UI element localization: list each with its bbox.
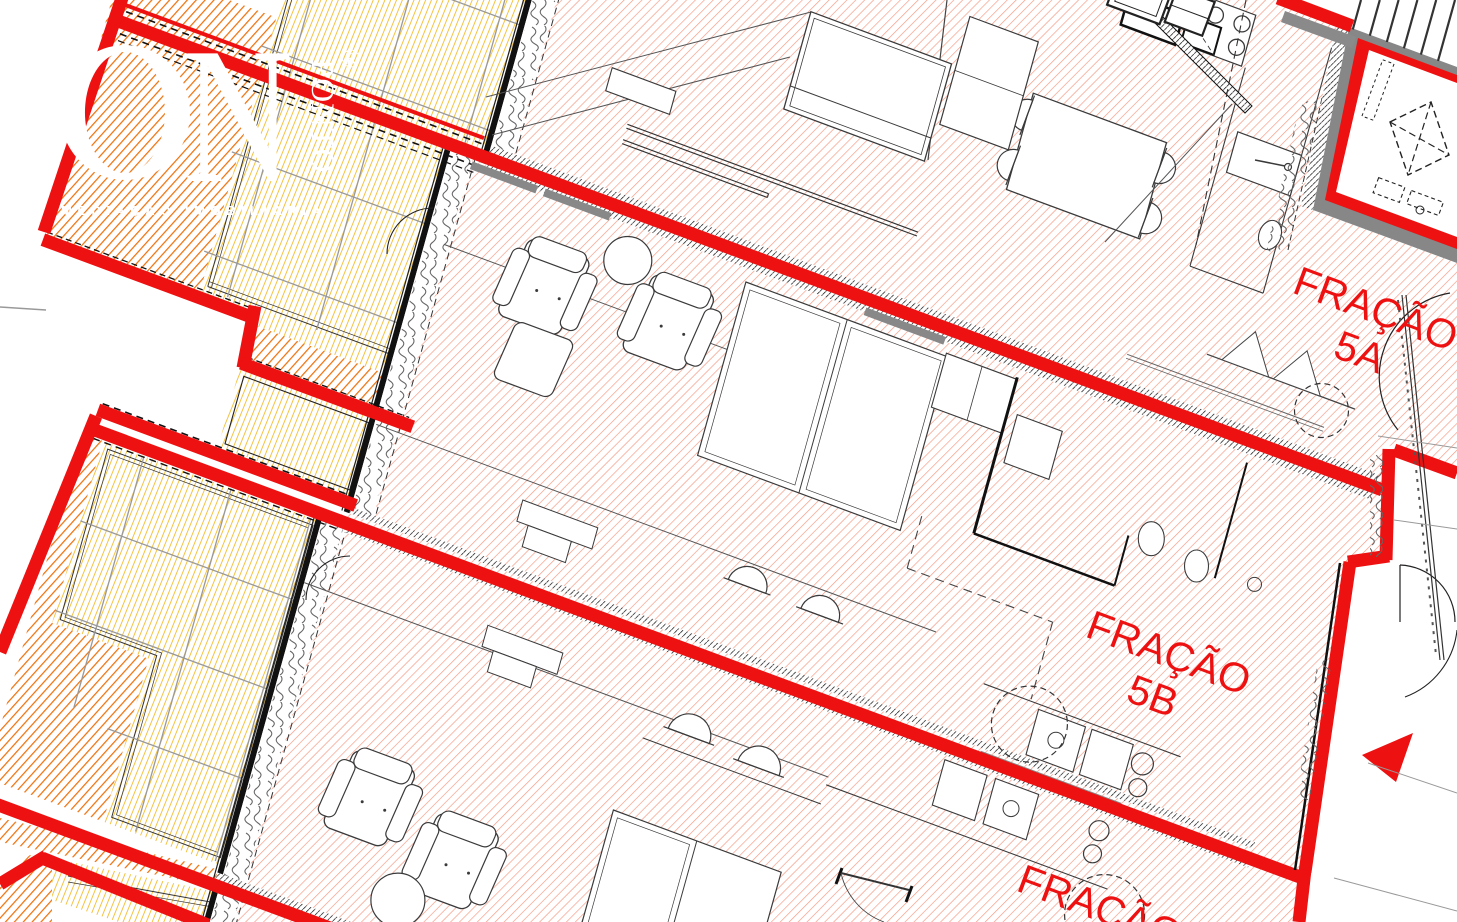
svg-text:PONTO: PONTO xyxy=(304,59,340,173)
svg-text:MEDIAÇÃO IMOBILIÁRIA: MEDIAÇÃO IMOBILIÁRIA xyxy=(61,203,326,218)
svg-text:N: N xyxy=(183,7,293,223)
svg-text:®: ® xyxy=(341,44,361,73)
